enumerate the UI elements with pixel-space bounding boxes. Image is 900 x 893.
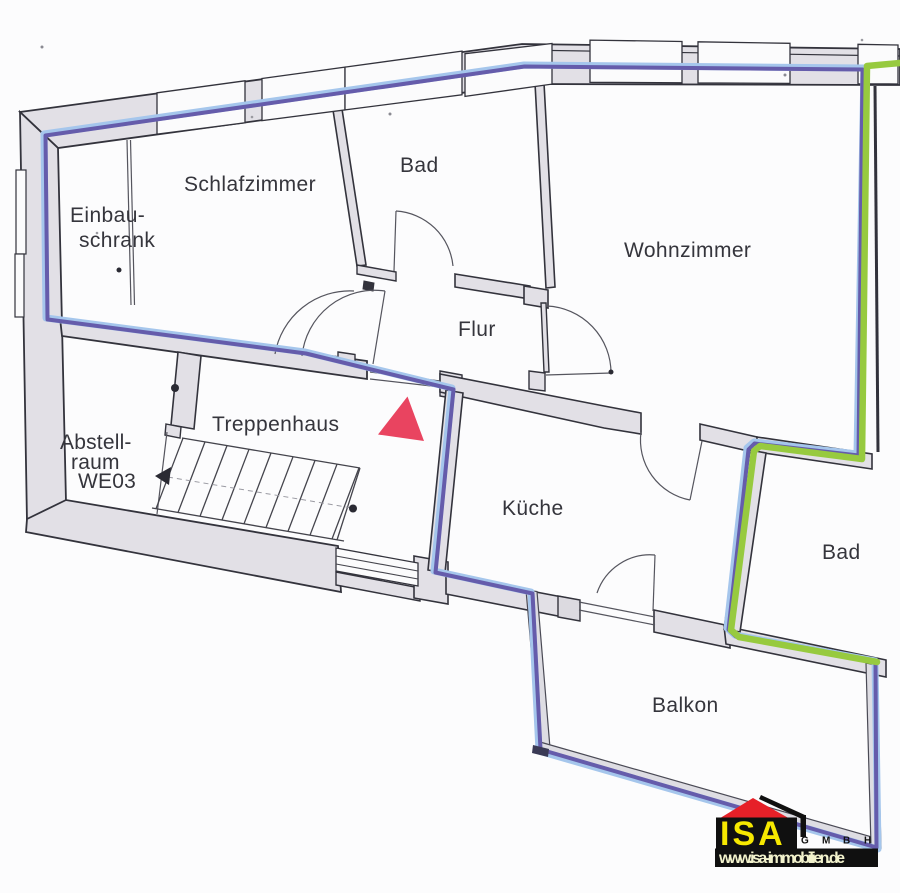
- svg-text:Bad: Bad: [400, 154, 439, 177]
- svg-text:Einbau-: Einbau-: [70, 204, 145, 227]
- svg-text:Bad: Bad: [822, 541, 861, 564]
- svg-text:Flur: Flur: [458, 318, 496, 341]
- svg-text:G: G: [801, 836, 809, 847]
- svg-text:Küche: Küche: [502, 497, 564, 520]
- svg-text:B: B: [843, 836, 850, 847]
- svg-text:Balkon: Balkon: [652, 694, 719, 717]
- svg-text:H: H: [864, 836, 871, 847]
- svg-text:Treppenhaus: Treppenhaus: [212, 413, 339, 436]
- svg-text:M: M: [822, 836, 830, 847]
- svg-text:Schlafzimmer: Schlafzimmer: [184, 173, 316, 196]
- svg-text:schrank: schrank: [79, 229, 155, 252]
- svg-text:ISA: ISA: [720, 815, 786, 853]
- svg-text:WE03: WE03: [78, 470, 136, 493]
- svg-text:www.isa-immobilien.de: www.isa-immobilien.de: [718, 850, 845, 867]
- svg-text:Wohnzimmer: Wohnzimmer: [624, 239, 751, 262]
